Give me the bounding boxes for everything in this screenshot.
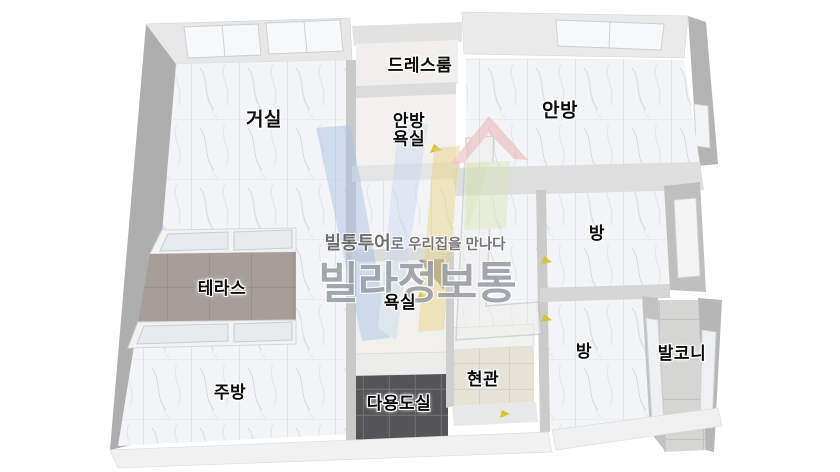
utility-counter [352,352,448,376]
floor-master [466,58,700,168]
terrace-glass [234,230,292,250]
terrace-glass [137,324,228,344]
floorplan-canvas: 빌통투어로 우리집을 만나다 빌라정보통 드레스룸 거실 안방 욕실 안방 방 … [0,0,840,472]
room-label-dressroom: 드레스룸 [388,57,453,75]
room-label-kitchen: 주방 [214,384,246,402]
floor-room-bottom [540,296,650,432]
room-label-utility: 다용도실 [367,395,432,413]
wall-entry-bottom [452,402,538,426]
room-label-master: 안방 [542,102,578,123]
terrace-glass [234,322,292,342]
room-label-living: 거실 [246,111,282,132]
room-label-terrace: 테라스 [198,280,246,298]
room-label-room-bottom: 방 [576,343,592,361]
room-label-balcony: 발코니 [658,345,706,363]
room-label-bath: 욕실 [384,294,416,312]
room-label-entrance: 현관 [467,371,499,389]
watermark-brand-name: 빌라정보통 [318,259,515,308]
door-room-right [674,198,700,278]
room-label-master-bath: 안방 욕실 [393,113,425,150]
room-label-room-right: 방 [589,225,605,243]
terrace-glass [160,232,228,251]
